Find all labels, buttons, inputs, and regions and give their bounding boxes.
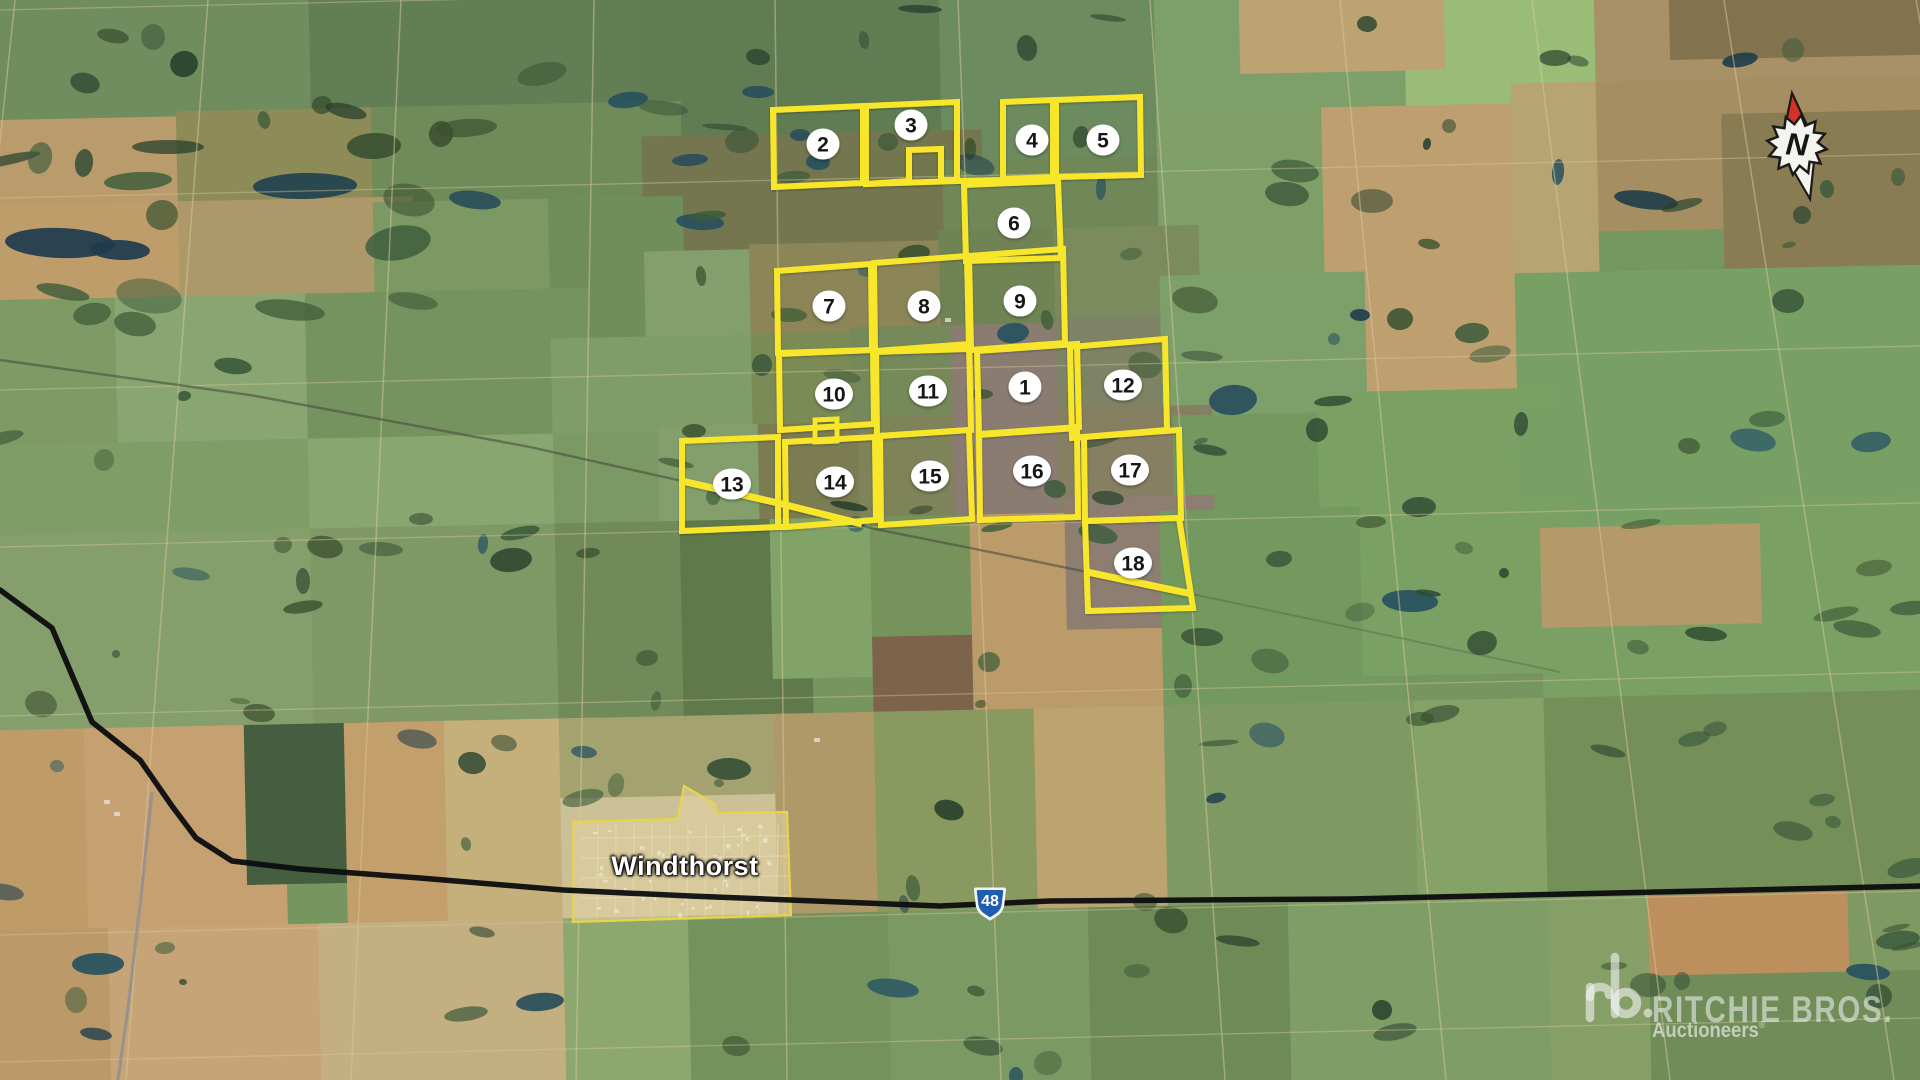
marker-number: 17 [1118,460,1141,483]
parcel-marker-10[interactable]: 10 [815,379,853,410]
parcel-marker-4[interactable]: 4 [1016,125,1049,156]
highway-number: 48 [973,893,1007,911]
marker-number: 1 [1019,377,1031,400]
ritchie-bros-watermark: RITCHIE BROS. Auctioneers® [1570,945,1920,1055]
rb-logo-icon [1578,948,1658,1023]
watermark-tagline: Auctioneers [1652,1019,1759,1042]
marker-number: 13 [720,474,743,497]
marker-number: 2 [817,134,829,157]
parcel-marker-15[interactable]: 15 [911,461,949,492]
parcel-marker-13[interactable]: 13 [713,469,751,500]
compass-north-label: N [1764,125,1830,165]
marker-number: 15 [918,466,942,489]
marker-number: 8 [918,296,930,319]
parcel-marker-18[interactable]: 18 [1114,548,1152,579]
parcel-marker-12[interactable]: 12 [1104,370,1142,401]
parcel-marker-5[interactable]: 5 [1087,125,1120,156]
registered-mark: ® [1759,1020,1765,1031]
parcel-marker-7[interactable]: 7 [813,291,846,322]
parcel-marker-2[interactable]: 2 [807,129,840,160]
marker-number: 11 [917,381,940,404]
marker-number: 12 [1111,375,1134,398]
marker-number: 3 [905,115,917,138]
parcel-marker-17[interactable]: 17 [1111,455,1149,486]
marker-number: 14 [823,472,847,495]
parcel-marker-11[interactable]: 11 [909,376,947,407]
watermark-tagline-row: Auctioneers® [1652,1019,1765,1043]
parcel-marker-8[interactable]: 8 [908,291,941,322]
satellite-map-canvas: 123456789101112131415161718 [0,0,1920,1080]
marker-number: 10 [822,384,845,407]
marker-number: 7 [823,296,835,319]
parcel-marker-14[interactable]: 14 [816,467,854,498]
parcel-marker-16[interactable]: 16 [1013,456,1051,487]
parcel-marker-1[interactable]: 1 [1009,372,1042,403]
parcel-marker-6[interactable]: 6 [998,208,1031,239]
highway-48-shield: 48 [973,886,1007,924]
town-label: Windthorst [595,851,775,882]
marker-number: 4 [1026,130,1038,153]
parcel-marker-3[interactable]: 3 [895,110,928,141]
marker-number: 18 [1121,553,1145,576]
auction-map: 123456789101112131415161718 Windthorst 4… [0,0,1920,1080]
parcel-marker-9[interactable]: 9 [1004,286,1037,317]
compass-rose: N [1737,85,1857,205]
marker-number: 5 [1097,130,1109,153]
marker-number: 16 [1020,461,1043,484]
marker-number: 9 [1014,291,1026,314]
marker-number: 6 [1008,213,1020,236]
